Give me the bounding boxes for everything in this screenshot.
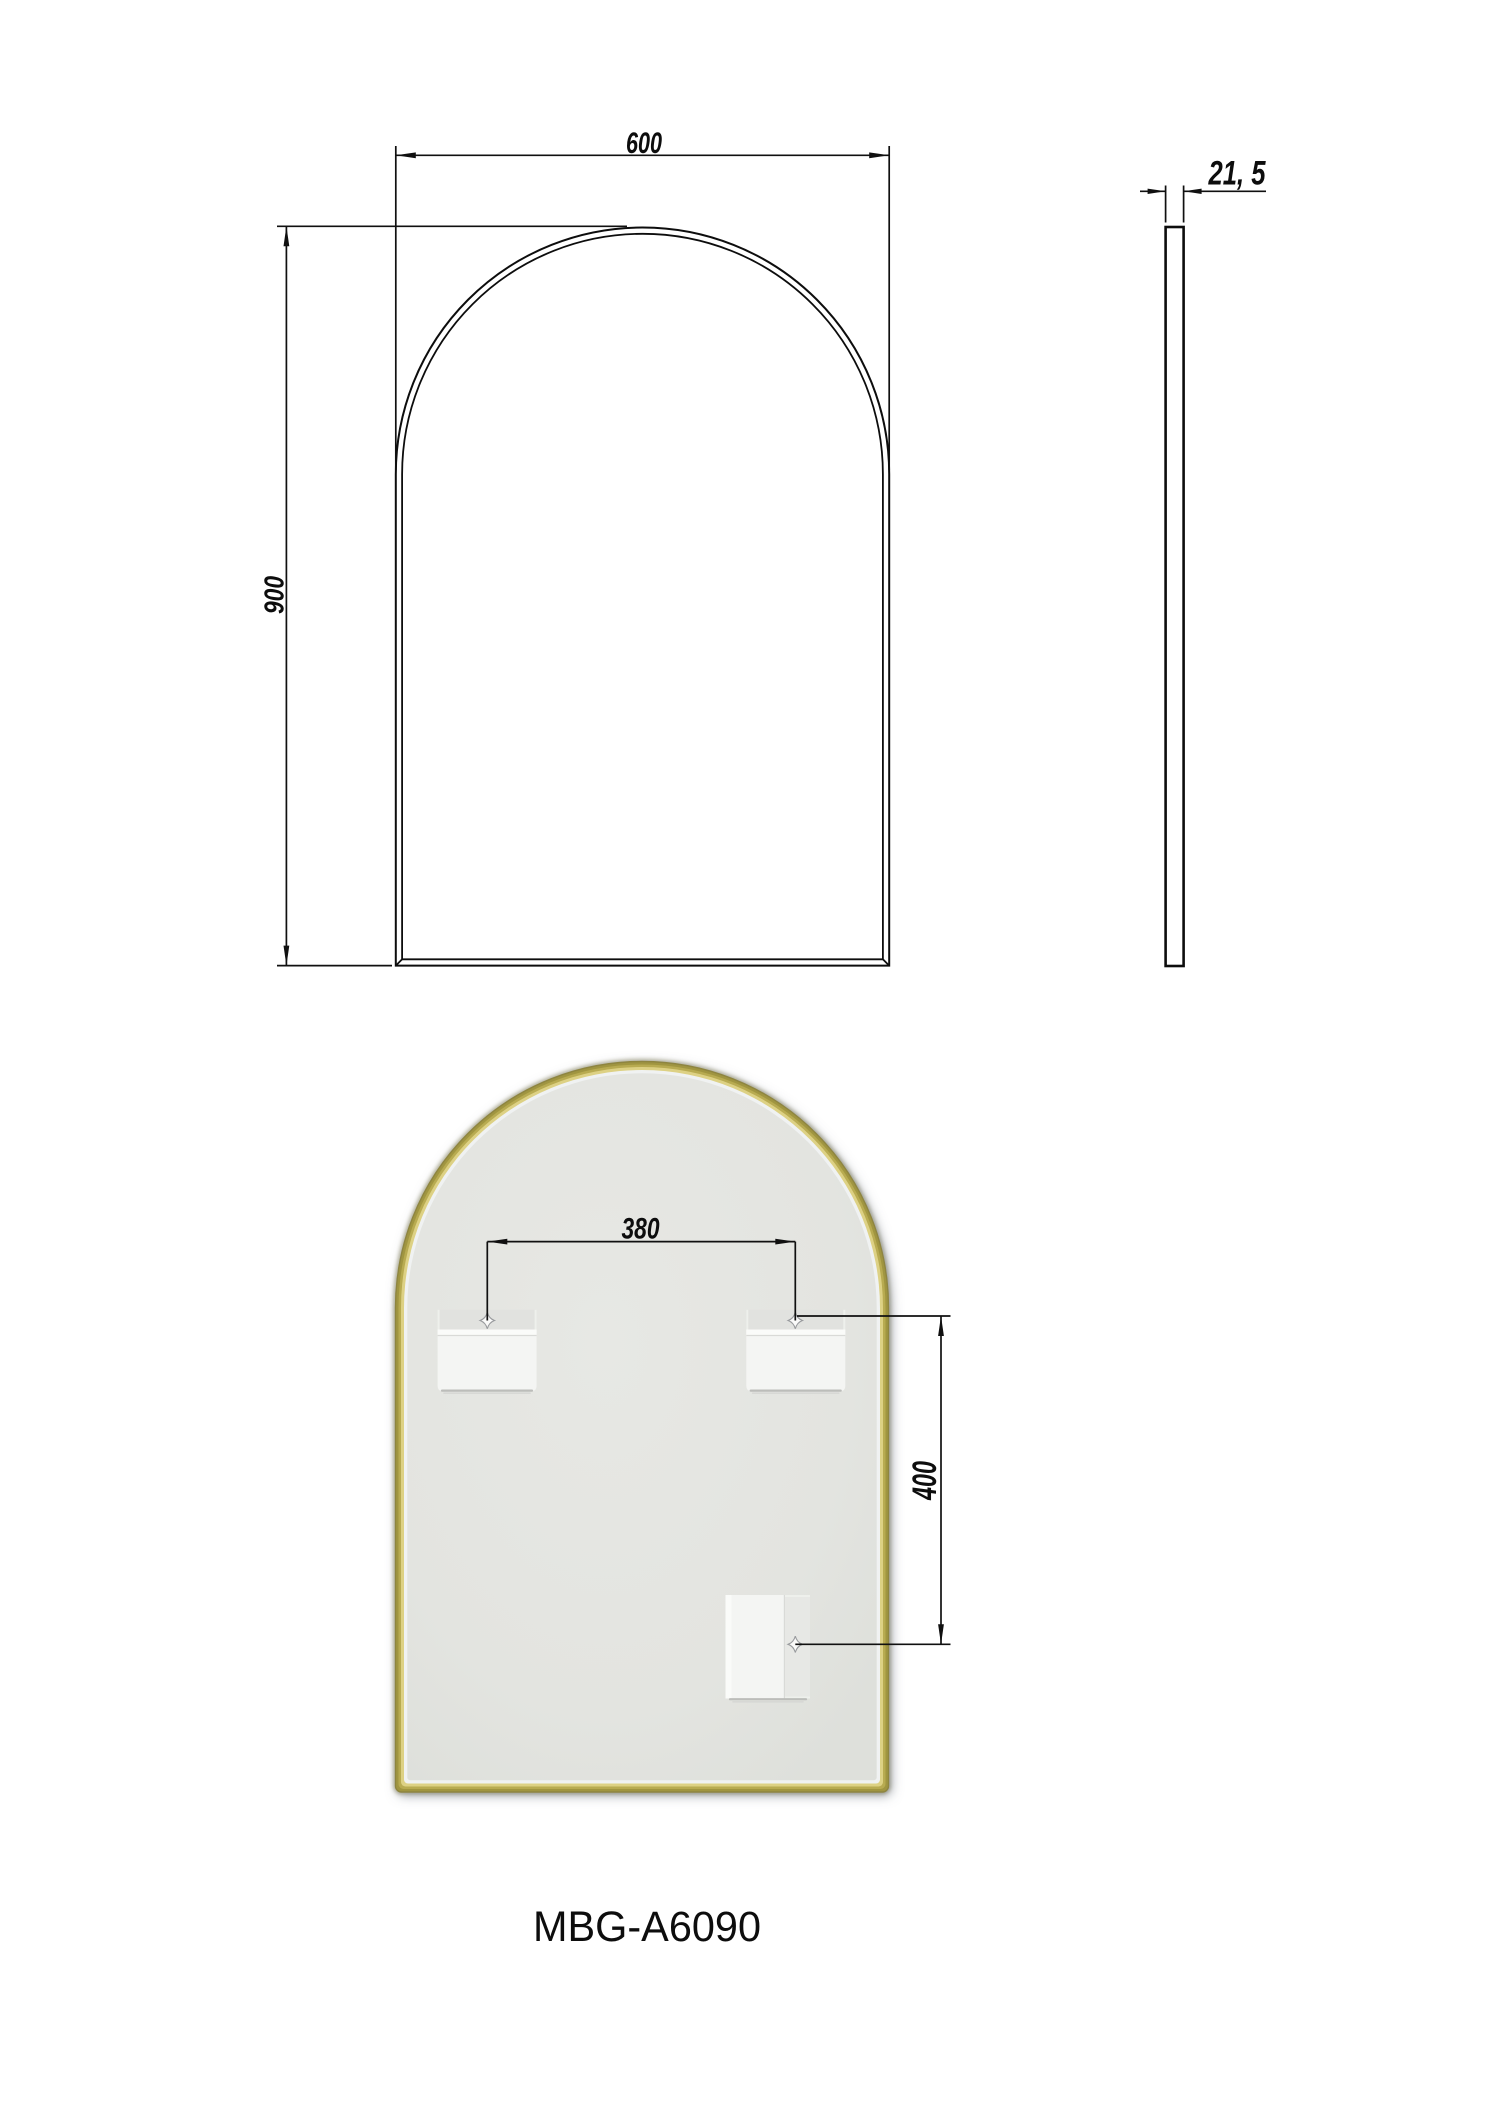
svg-text:600: 600 bbox=[626, 127, 662, 160]
svg-text:900: 900 bbox=[259, 576, 290, 614]
svg-text:380: 380 bbox=[622, 1212, 660, 1245]
svg-text:21, 5: 21, 5 bbox=[1208, 155, 1267, 193]
svg-text:MBG-A6090: MBG-A6090 bbox=[533, 1903, 761, 1951]
svg-text:400: 400 bbox=[906, 1461, 944, 1501]
